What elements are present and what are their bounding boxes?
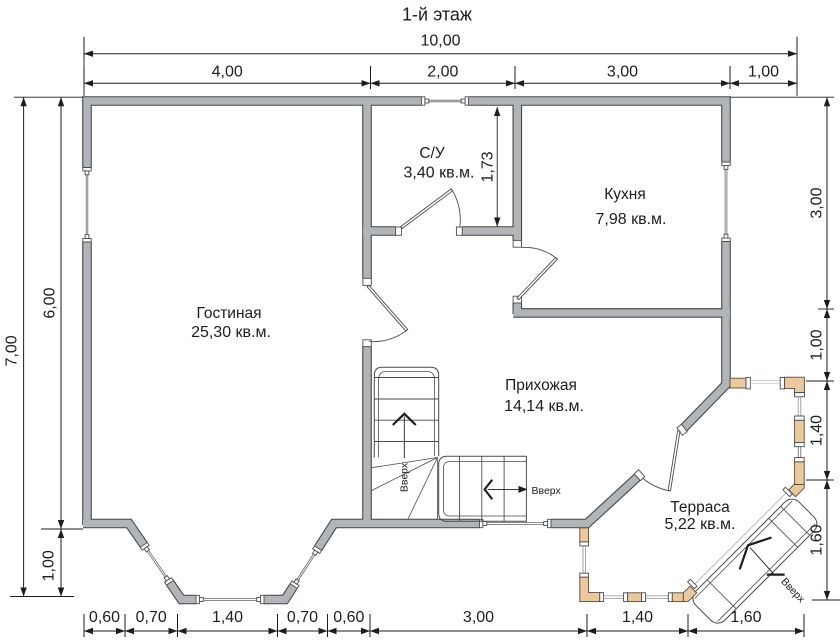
svg-text:3,00: 3,00 — [463, 609, 494, 626]
svg-text:1,40: 1,40 — [212, 609, 243, 626]
svg-text:0,60: 0,60 — [89, 609, 120, 626]
svg-text:4,00: 4,00 — [212, 63, 243, 80]
svg-text:10,00: 10,00 — [420, 33, 460, 50]
svg-text:Кухня: Кухня — [604, 186, 645, 203]
svg-text:3,40 кв.м.: 3,40 кв.м. — [404, 165, 475, 182]
svg-text:1,73: 1,73 — [480, 151, 497, 182]
svg-text:7,98 кв.м.: 7,98 кв.м. — [596, 211, 667, 228]
svg-text:14,14 кв.м.: 14,14 кв.м. — [504, 398, 584, 415]
svg-text:6,00: 6,00 — [42, 287, 59, 318]
svg-text:Гостиная: Гостиная — [196, 305, 261, 322]
svg-text:Вверх: Вверх — [398, 462, 410, 492]
svg-text:0,60: 0,60 — [333, 609, 364, 626]
svg-text:1,00: 1,00 — [41, 550, 58, 581]
svg-text:Терраса: Терраса — [670, 499, 730, 516]
svg-text:5,22 кв.м.: 5,22 кв.м. — [665, 516, 736, 533]
svg-text:0,70: 0,70 — [136, 609, 167, 626]
svg-text:С/У: С/У — [419, 145, 445, 162]
svg-text:Вверх: Вверх — [532, 485, 562, 497]
svg-text:1-й этаж: 1-й этаж — [402, 5, 472, 25]
svg-text:Прихожая: Прихожая — [505, 377, 577, 394]
svg-text:0,70: 0,70 — [287, 609, 318, 626]
svg-text:25,30 кв.м.: 25,30 кв.м. — [191, 324, 271, 341]
svg-text:2,00: 2,00 — [427, 63, 458, 80]
svg-text:1,60: 1,60 — [730, 609, 761, 626]
svg-text:1,60: 1,60 — [809, 524, 826, 555]
svg-text:1,40: 1,40 — [622, 609, 653, 626]
svg-text:1,00: 1,00 — [809, 329, 826, 360]
svg-text:3,00: 3,00 — [809, 187, 826, 218]
svg-text:3,00: 3,00 — [607, 63, 638, 80]
svg-text:1,00: 1,00 — [748, 63, 779, 80]
svg-text:7,00: 7,00 — [4, 335, 21, 366]
svg-text:1,40: 1,40 — [809, 415, 826, 446]
